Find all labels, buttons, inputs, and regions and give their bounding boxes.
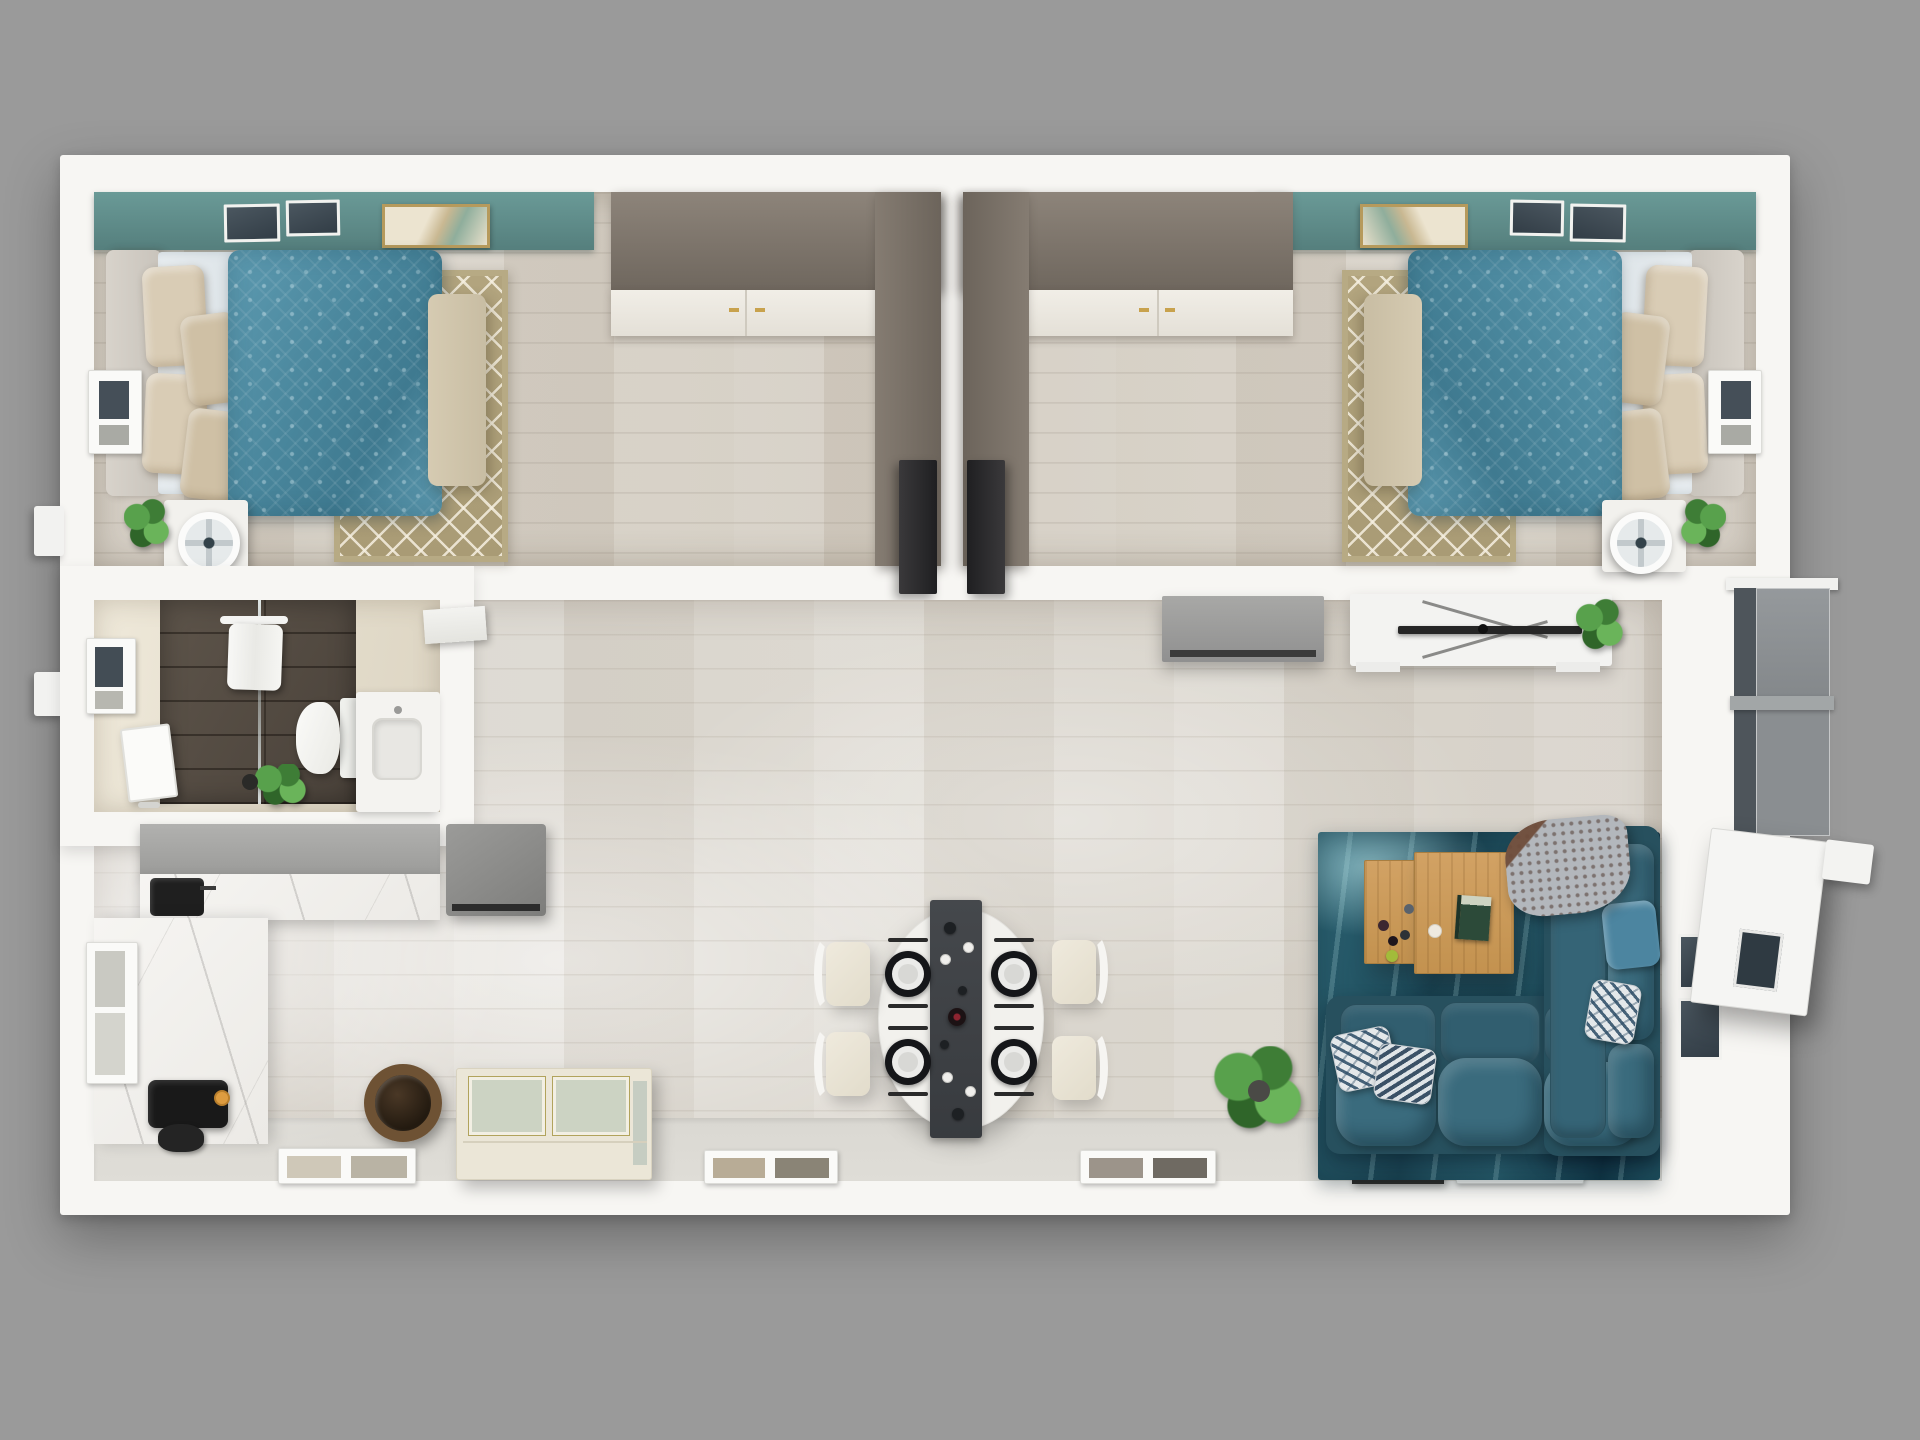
vanity <box>356 692 440 812</box>
sliding-door-frame <box>1734 588 1756 836</box>
wicker-basket <box>364 1064 442 1142</box>
window-pane <box>1721 425 1751 445</box>
wardrobe-handle <box>755 308 765 312</box>
fan <box>1610 512 1672 574</box>
console-plant <box>1576 598 1624 654</box>
tv-center-knob <box>1478 624 1488 634</box>
bedroom-door <box>899 460 937 594</box>
dinner-plate-center <box>898 964 918 984</box>
bottom-window <box>1080 1150 1216 1184</box>
cutlery <box>994 1026 1034 1030</box>
window-pane <box>713 1158 765 1178</box>
sofa-back-cushion <box>1608 1044 1654 1138</box>
nightstand-plant <box>124 498 170 552</box>
wine-glass <box>942 1072 953 1083</box>
fan <box>178 512 240 574</box>
wardrobe-doors <box>611 290 879 336</box>
chair-back <box>814 1026 840 1102</box>
cabinet-glass-panel <box>553 1077 629 1135</box>
tv <box>1398 626 1582 634</box>
floorplan-scene: Top-down 3D rendered floor plan of a rec… <box>0 0 1920 1440</box>
dresser-slot <box>1170 650 1316 657</box>
cabinet-side-glass <box>633 1081 647 1165</box>
dinner-plate-center <box>1004 1052 1024 1072</box>
duvet <box>1408 250 1622 516</box>
foot-bench <box>1364 294 1422 486</box>
wall-art <box>1360 204 1468 248</box>
cutlery <box>994 1004 1034 1008</box>
window-pane <box>1721 381 1751 419</box>
cutlery <box>888 1026 928 1030</box>
window-pane <box>95 647 123 687</box>
wine-bottle <box>948 1008 966 1026</box>
accent-wall-strip <box>1256 192 1756 250</box>
side-window <box>88 370 142 454</box>
wall-shelf <box>423 606 487 644</box>
media-console <box>1350 594 1612 666</box>
kettle <box>158 1124 204 1152</box>
wine-glass <box>965 1086 976 1097</box>
runner-decor <box>958 986 967 995</box>
cutlery <box>888 1004 928 1008</box>
wall-art <box>382 204 490 248</box>
cutlery <box>888 938 928 942</box>
dining-chair <box>1048 934 1108 1010</box>
refrigerator-vent <box>452 904 540 911</box>
bedroom-door <box>967 460 1005 594</box>
kitchen-sink <box>150 878 204 916</box>
cabinet-seam <box>463 1141 647 1143</box>
wardrobe-doors <box>1025 290 1293 336</box>
throw-pillow <box>1583 978 1643 1046</box>
window-pane <box>287 1156 341 1178</box>
window-pane <box>775 1158 829 1178</box>
wardrobe-handle <box>729 308 739 312</box>
side-window <box>1708 370 1762 454</box>
window-pane <box>95 691 123 709</box>
window-pane <box>95 951 125 1007</box>
cup <box>1404 904 1414 914</box>
vanity-mirror <box>120 723 179 803</box>
window-pane <box>1089 1158 1143 1178</box>
plant-pot <box>242 774 258 790</box>
dining-chair <box>814 1026 874 1102</box>
skylight-window <box>1570 204 1627 243</box>
nightstand-plant <box>1680 498 1726 552</box>
dining-chair <box>814 936 874 1012</box>
door-bracket <box>1822 839 1875 885</box>
coffee-cup <box>214 1090 230 1106</box>
console-step <box>1356 662 1400 672</box>
right-wall-window <box>1678 998 1722 1060</box>
fruit <box>1388 936 1398 946</box>
fruit <box>1378 920 1389 931</box>
towel <box>227 623 283 691</box>
window-pane <box>1153 1158 1207 1178</box>
bottom-window <box>704 1150 838 1184</box>
kitchen-faucet <box>200 886 216 890</box>
wardrobe-door-seam <box>745 290 747 336</box>
chair-back <box>1082 934 1108 1010</box>
sink <box>372 718 422 780</box>
chair-back <box>1082 1030 1108 1106</box>
throw-pillow <box>1372 1042 1437 1106</box>
book <box>1455 895 1492 941</box>
towel-rail <box>220 616 288 624</box>
sofa-seat-cushion <box>1440 1002 1540 1064</box>
sink-faucet <box>394 706 402 714</box>
door-window <box>1733 929 1784 992</box>
cutlery <box>994 1092 1034 1096</box>
wardrobe-door-seam <box>1157 290 1159 336</box>
duvet <box>228 250 442 516</box>
skylight-window <box>286 200 341 237</box>
plant-pot <box>1248 1080 1270 1102</box>
skylight-window <box>224 204 281 243</box>
accent-wall-strip <box>94 192 594 250</box>
console-step <box>1556 662 1600 672</box>
cutlery <box>888 1092 928 1096</box>
display-cabinet <box>456 1068 652 1180</box>
mirror-base <box>138 802 160 808</box>
bathroom-plant <box>252 764 310 806</box>
chair-back <box>814 936 840 1012</box>
runner-decor <box>952 1108 964 1120</box>
dresser <box>1162 596 1324 662</box>
window-pane <box>99 425 129 445</box>
wardrobe-handle <box>1165 308 1175 312</box>
bathroom-window <box>86 638 136 714</box>
runner-decor <box>940 1040 949 1049</box>
wine-glass <box>940 954 951 965</box>
sliding-door-pane <box>1756 706 1830 836</box>
sliding-door-crossbar <box>1730 696 1834 710</box>
dining-chair <box>1048 1030 1108 1106</box>
runner-decor <box>944 922 956 934</box>
entry-door-open <box>1690 827 1829 1016</box>
cabinet-glass-panel <box>469 1077 545 1135</box>
candle <box>1428 924 1442 938</box>
wardrobe-handle <box>1139 308 1149 312</box>
window-pane <box>351 1156 407 1178</box>
kitchen-window <box>86 942 138 1084</box>
bedroom-1 <box>94 192 941 566</box>
accent-pillow <box>1601 899 1662 970</box>
foot-bench <box>428 294 486 486</box>
sofa-back-cushion <box>1438 1058 1542 1146</box>
bottom-window <box>278 1148 416 1184</box>
dinner-plate-center <box>1004 964 1024 984</box>
cup <box>1400 930 1410 940</box>
window-pane <box>95 1013 125 1075</box>
cutlery <box>994 938 1034 942</box>
sliding-door-pane <box>1756 588 1830 698</box>
skylight-window <box>1510 200 1565 237</box>
bedroom-2 <box>963 192 1756 566</box>
window-pane <box>99 381 129 419</box>
exterior-stub <box>34 506 64 556</box>
refrigerator <box>446 824 546 916</box>
sliding-glass-door <box>1726 578 1840 838</box>
bathroom <box>94 600 440 812</box>
apple <box>1386 950 1398 962</box>
dinner-plate-center <box>898 1052 918 1072</box>
kitchen-upper-cabinet <box>140 824 440 876</box>
wine-glass <box>963 942 974 953</box>
